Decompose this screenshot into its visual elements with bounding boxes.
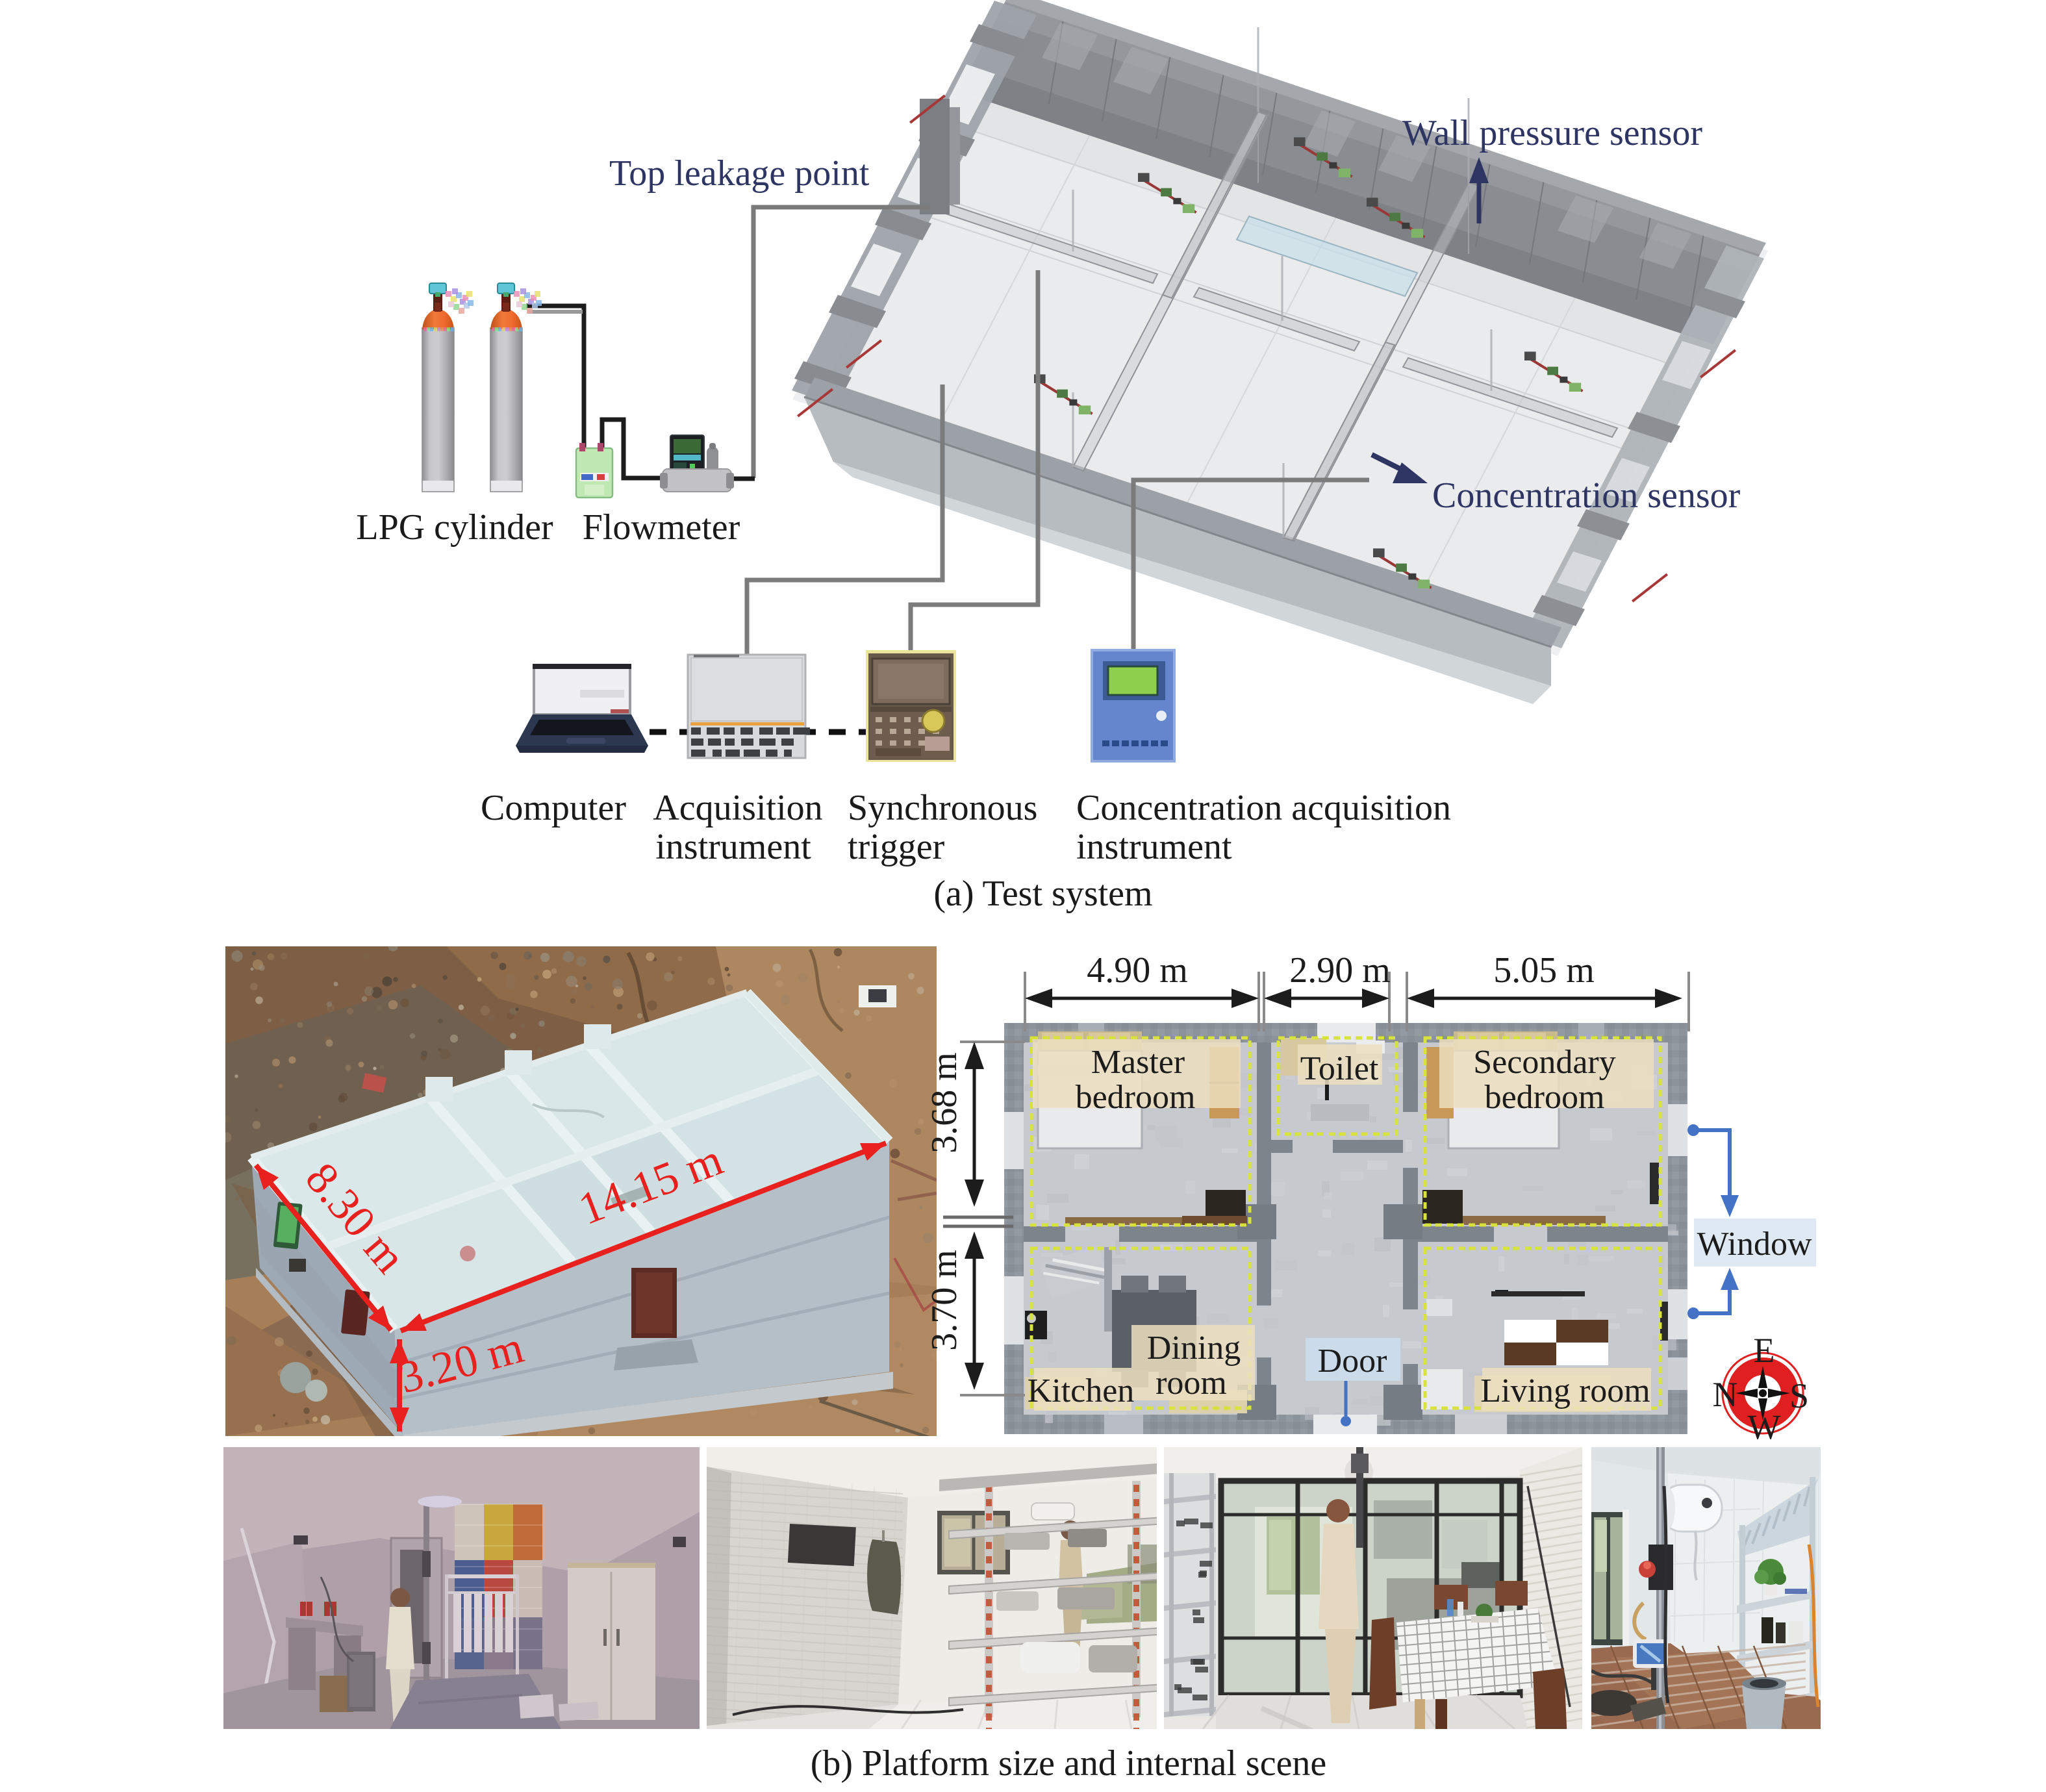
svg-text:4.90 m: 4.90 m xyxy=(1087,950,1188,991)
svg-text:Synchronous: Synchronous xyxy=(848,788,1037,828)
svg-text:3.68 m: 3.68 m xyxy=(924,1052,965,1154)
svg-text:Living room: Living room xyxy=(1480,1372,1650,1409)
svg-text:trigger: trigger xyxy=(848,827,945,867)
svg-text:Top leakage point: Top leakage point xyxy=(609,153,870,194)
svg-text:bedroom: bedroom xyxy=(1076,1079,1196,1116)
svg-text:Toilet: Toilet xyxy=(1300,1050,1379,1087)
svg-text:Secondary: Secondary xyxy=(1473,1044,1615,1081)
svg-text:LPG cylinder: LPG cylinder xyxy=(356,507,553,548)
svg-text:room: room xyxy=(1156,1365,1227,1402)
svg-text:Concentration sensor: Concentration sensor xyxy=(1432,475,1741,516)
svg-text:bedroom: bedroom xyxy=(1485,1079,1605,1116)
svg-text:Kitchen: Kitchen xyxy=(1028,1372,1135,1409)
svg-text:Acquisition: Acquisition xyxy=(653,788,822,828)
svg-text:Master: Master xyxy=(1091,1044,1185,1081)
svg-text:S: S xyxy=(1789,1376,1809,1415)
svg-text:Concentration acquisition: Concentration acquisition xyxy=(1076,788,1451,828)
svg-text:Wall pressure sensor: Wall pressure sensor xyxy=(1402,113,1702,153)
svg-text:3.70 m: 3.70 m xyxy=(924,1250,965,1351)
svg-text:(b) Platform size and internal: (b) Platform size and internal scene xyxy=(811,1743,1327,1784)
svg-text:instrument: instrument xyxy=(1076,827,1232,867)
svg-text:Computer: Computer xyxy=(481,788,626,828)
svg-text:W: W xyxy=(1748,1407,1781,1446)
svg-text:Door: Door xyxy=(1318,1343,1387,1380)
svg-text:5.05 m: 5.05 m xyxy=(1493,950,1595,991)
svg-text:instrument: instrument xyxy=(655,827,811,867)
svg-text:(a) Test system: (a) Test system xyxy=(933,874,1152,914)
svg-text:Dining: Dining xyxy=(1147,1330,1241,1367)
svg-text:N: N xyxy=(1713,1375,1738,1414)
svg-text:Window: Window xyxy=(1697,1226,1812,1263)
svg-text:2.90 m: 2.90 m xyxy=(1289,950,1391,991)
svg-text:Flowmeter: Flowmeter xyxy=(583,507,740,548)
svg-text:E: E xyxy=(1754,1331,1775,1370)
